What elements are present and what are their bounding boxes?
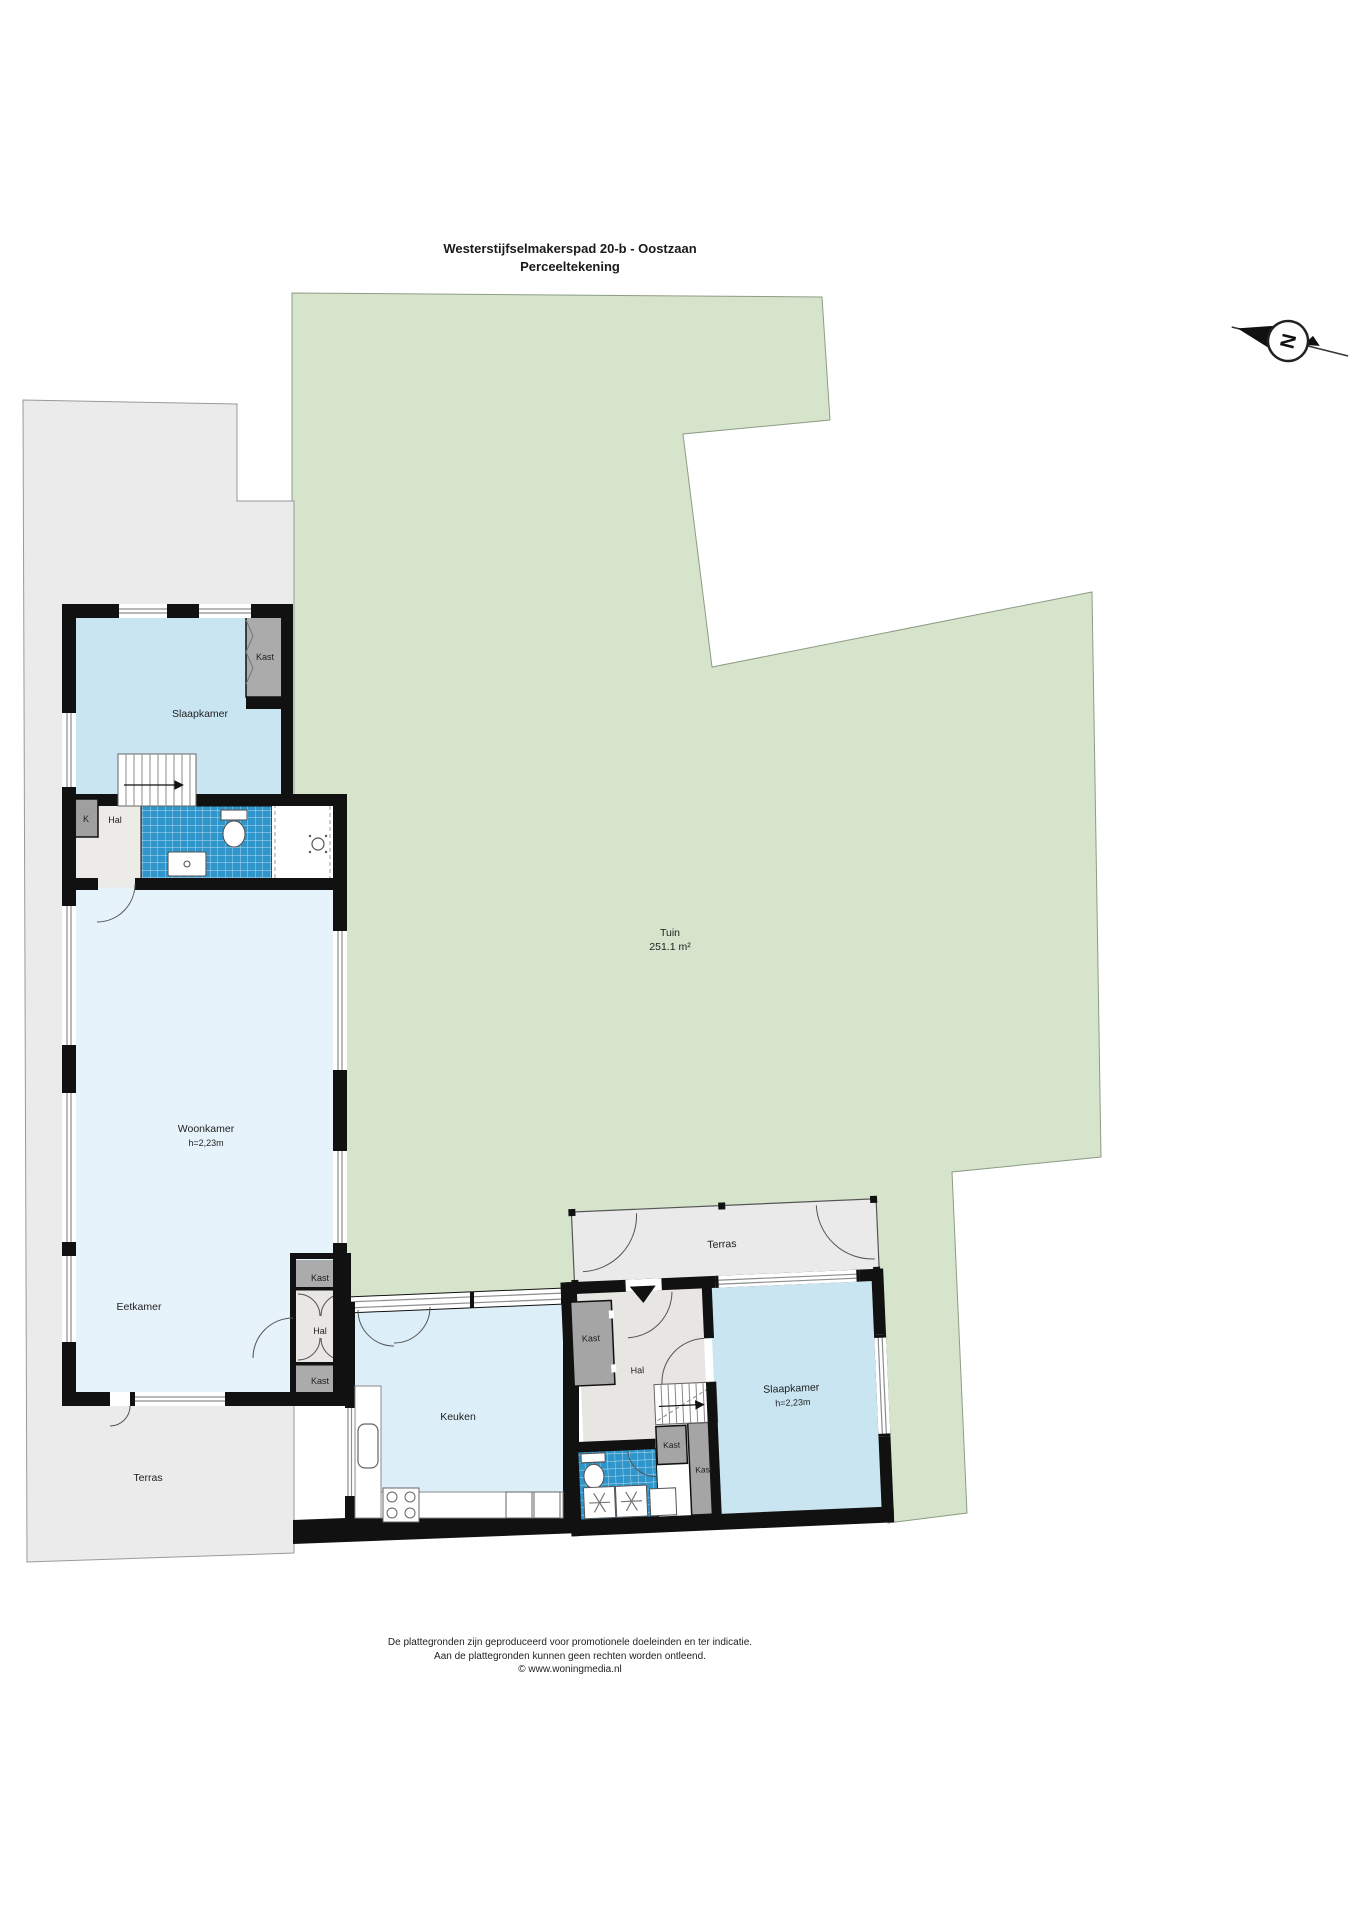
window xyxy=(132,1392,228,1406)
garden-area-label: 251.1 m² xyxy=(649,941,691,953)
footer-line-1: De plattegronden zijn geproduceerd voor … xyxy=(0,1636,1140,1650)
window xyxy=(62,1253,76,1345)
toilet-1-icon xyxy=(221,810,247,847)
window xyxy=(345,1408,355,1496)
footer-line-2: Aan de plattegronden kunnen geen rechten… xyxy=(0,1650,1140,1664)
shower-icon xyxy=(272,802,333,884)
door-gap xyxy=(110,1392,130,1406)
kast-klein-label: Kast xyxy=(663,1440,681,1451)
right-building: Terras Hal Kast Kast Kast Slaapkamer h=2… xyxy=(557,1196,894,1537)
wall-top xyxy=(62,604,293,618)
floor-plan-svg: Tuin 251.1 m² Terras xyxy=(0,0,1358,1920)
closet-kast-entree xyxy=(567,1300,617,1386)
wall-right-lower xyxy=(333,794,347,1406)
appliance-icon xyxy=(534,1492,560,1518)
slaapkamer-2-label: Slaapkamer xyxy=(763,1381,820,1395)
north-compass-icon: N xyxy=(1227,308,1353,376)
footer-disclaimer: De plattegronden zijn geproduceerd voor … xyxy=(0,1636,1140,1677)
woonkamer-label: Woonkamer xyxy=(178,1123,235,1135)
kast-groot-label: Kast xyxy=(695,1464,713,1475)
window xyxy=(196,604,254,618)
stove-icon xyxy=(383,1488,419,1522)
slaapkamer-2-height-label: h=2,23m xyxy=(775,1397,811,1409)
wall-right-upper xyxy=(281,604,293,806)
terrace-left-label: Terras xyxy=(133,1472,162,1484)
hal-rechts-label: Hal xyxy=(630,1365,644,1376)
kast-hal-boven-label: Kast xyxy=(311,1273,330,1283)
keuken-label: Keuken xyxy=(440,1411,476,1423)
stairs-1 xyxy=(118,754,196,806)
terras-right-label: Terras xyxy=(707,1238,737,1251)
hal-eetkamer-label: Hal xyxy=(313,1326,327,1336)
footer-line-3: © www.woningmedia.nl xyxy=(0,1663,1140,1677)
window xyxy=(62,1090,76,1245)
window xyxy=(333,928,347,1073)
window xyxy=(116,604,170,618)
kast-entree-label: Kast xyxy=(582,1333,601,1344)
window xyxy=(62,903,76,1048)
kast-hal-onder-label: Kast xyxy=(311,1376,330,1386)
dryer-icon xyxy=(615,1485,647,1517)
window xyxy=(333,1148,347,1246)
floorplan-page: Westerstijfselmakerspad 20-b - Oostzaan … xyxy=(0,0,1358,1920)
appliance-icon xyxy=(506,1492,532,1518)
eetkamer-label: Eetkamer xyxy=(117,1301,162,1313)
k-closet-label: K xyxy=(83,814,89,824)
hal-boven-label: Hal xyxy=(108,815,122,825)
window xyxy=(62,710,76,790)
woonkamer-height-label: h=2,23m xyxy=(188,1138,223,1148)
sink-1-icon xyxy=(168,852,206,876)
wall xyxy=(135,878,340,890)
kast-slaapkamer-label: Kast xyxy=(256,652,275,662)
kitchen-sink-icon xyxy=(358,1424,378,1468)
shower-tray-icon xyxy=(650,1488,677,1516)
slaapkamer-1-label: Slaapkamer xyxy=(172,708,229,720)
washer-icon xyxy=(583,1486,615,1518)
garden-label: Tuin xyxy=(660,927,680,939)
